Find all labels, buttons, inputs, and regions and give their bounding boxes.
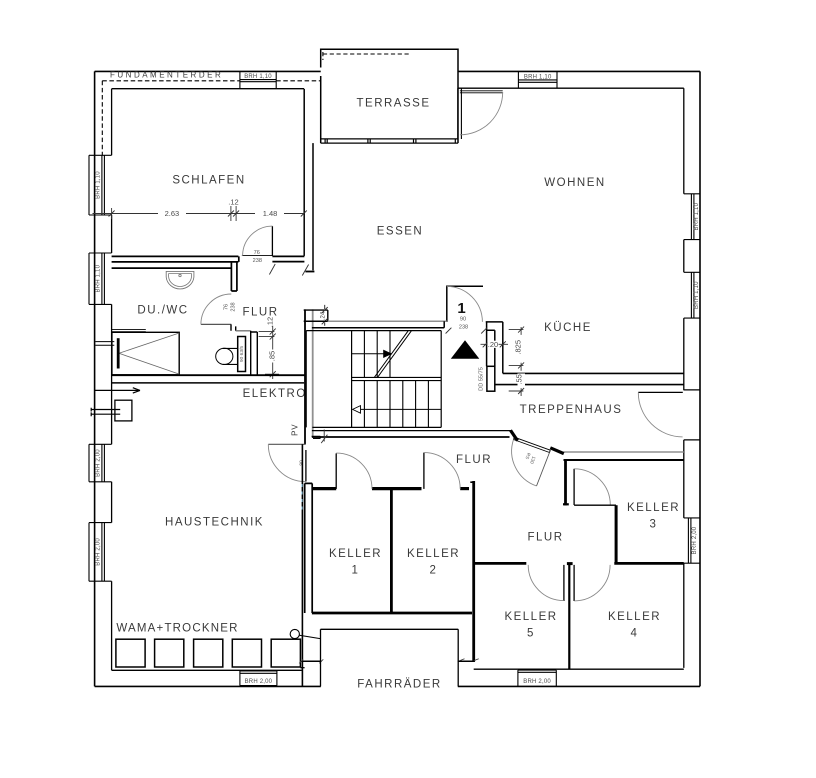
svg-text:BRH 1,10: BRH 1,10	[96, 171, 102, 199]
svg-text:PV: PV	[290, 424, 299, 436]
svg-text:FLUR: FLUR	[456, 454, 492, 466]
svg-text:FAHRRÄDER: FAHRRÄDER	[357, 679, 441, 691]
svg-text:.825: .825	[513, 340, 522, 355]
svg-text:KELLER: KELLER	[627, 502, 680, 514]
svg-text:.55: .55	[514, 374, 523, 384]
svg-text:KELLER: KELLER	[407, 548, 460, 560]
svg-text:238: 238	[253, 258, 262, 264]
svg-text:TERRASSE: TERRASSE	[357, 98, 431, 110]
svg-text:TREPPENHAUS: TREPPENHAUS	[520, 404, 623, 416]
svg-text:1: 1	[457, 300, 465, 317]
svg-text:BRH 2,00: BRH 2,00	[692, 526, 698, 554]
svg-text:238: 238	[231, 302, 237, 311]
svg-text:.12: .12	[265, 317, 274, 327]
svg-text:DD 55/75: DD 55/75	[478, 367, 484, 391]
svg-text:.12: .12	[228, 198, 238, 207]
svg-text:KELLER: KELLER	[329, 548, 382, 560]
svg-text:238: 238	[459, 324, 468, 330]
svg-text:76: 76	[254, 250, 260, 256]
svg-text:BRH 1,10: BRH 1,10	[694, 202, 700, 230]
svg-text:90: 90	[460, 317, 466, 323]
svg-text:3: 3	[650, 519, 658, 531]
svg-text:BRH 2,00: BRH 2,00	[523, 679, 551, 685]
svg-text:KÜCHE: KÜCHE	[544, 322, 592, 334]
svg-text:BRH 2,00: BRH 2,00	[96, 449, 102, 477]
svg-text:76: 76	[224, 304, 230, 310]
svg-text:2: 2	[430, 565, 438, 577]
svg-text:SCHLAFEN: SCHLAFEN	[172, 175, 245, 187]
svg-text:WOHNEN: WOHNEN	[544, 177, 605, 189]
svg-text:1: 1	[352, 565, 360, 577]
svg-text:KELLER: KELLER	[608, 611, 661, 623]
svg-text:FUNDAMENTERDER: FUNDAMENTERDER	[110, 71, 223, 80]
svg-text:90 63/5: 90 63/5	[239, 346, 245, 362]
svg-text:2.63: 2.63	[165, 209, 180, 218]
svg-text:BRH 1,10: BRH 1,10	[96, 264, 102, 292]
svg-text:5: 5	[527, 628, 535, 640]
svg-text:.20: .20	[488, 340, 498, 349]
svg-text:DU./WC: DU./WC	[137, 305, 188, 317]
svg-text:BRH 2,00: BRH 2,00	[245, 679, 273, 685]
svg-text:FLUR: FLUR	[527, 532, 563, 544]
svg-text:1.48: 1.48	[263, 209, 278, 218]
svg-text:4: 4	[631, 628, 639, 640]
svg-text:BRH 1,10: BRH 1,10	[524, 74, 552, 80]
svg-text:BRH 1,10: BRH 1,10	[694, 281, 700, 309]
svg-text:WAMA+TROCKNER: WAMA+TROCKNER	[116, 623, 238, 635]
svg-text:BRH 1,10: BRH 1,10	[244, 74, 272, 80]
svg-text:ELEKTRO: ELEKTRO	[243, 388, 307, 400]
svg-text:KELLER: KELLER	[504, 611, 557, 623]
svg-text:90: 90	[299, 460, 305, 466]
svg-text:.85: .85	[268, 351, 277, 361]
svg-text:BRH 2,00: BRH 2,00	[96, 538, 102, 566]
svg-text:FLUR: FLUR	[242, 307, 278, 319]
svg-text:ESSEN: ESSEN	[377, 226, 424, 238]
svg-text:.24: .24	[321, 311, 327, 320]
svg-text:HAUSTECHNIK: HAUSTECHNIK	[165, 517, 264, 529]
